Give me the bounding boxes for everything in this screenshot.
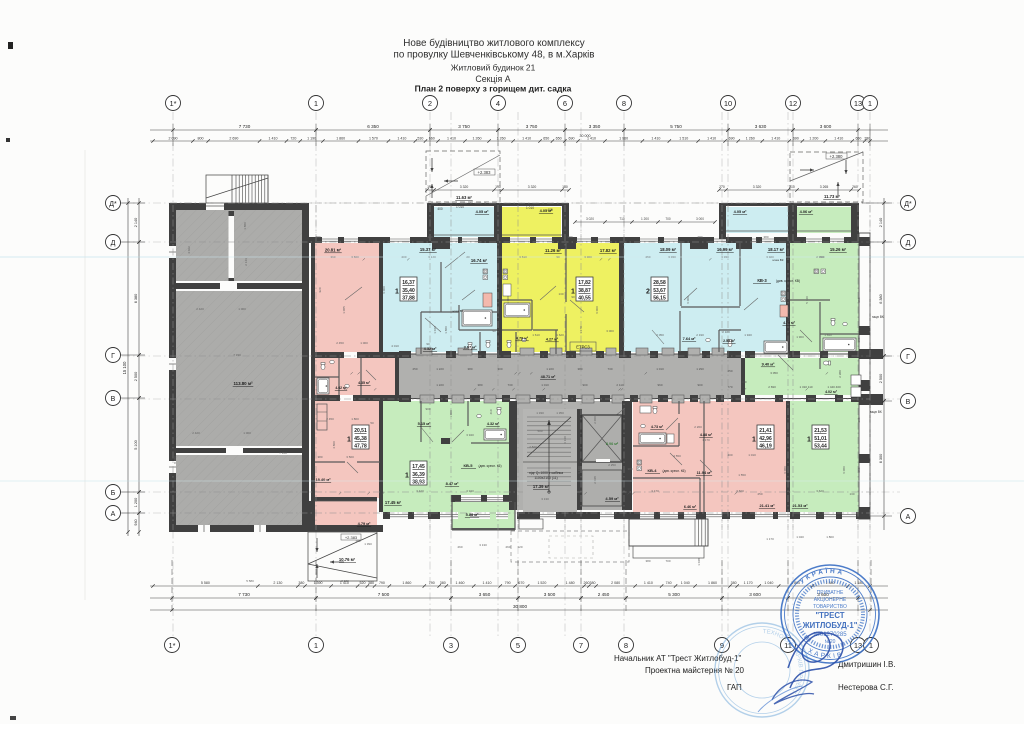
svg-text:2 090: 2 090: [168, 137, 177, 141]
svg-text:6 080: 6 080: [783, 466, 787, 474]
svg-text:3 265: 3 265: [820, 185, 829, 189]
svg-text:400: 400: [437, 207, 443, 211]
svg-text:4.79 м²: 4.79 м²: [358, 521, 372, 526]
svg-text:(див. кресл. К6): (див. кресл. К6): [662, 469, 685, 473]
svg-text:8.96 м²: 8.96 м²: [606, 442, 619, 446]
svg-text:6 000: 6 000: [686, 296, 690, 304]
svg-text:380: 380: [627, 467, 632, 471]
svg-text:790: 790: [379, 581, 385, 585]
svg-text:3 750: 3 750: [458, 124, 470, 129]
svg-text:380: 380: [697, 235, 702, 239]
svg-text:18.17 м²: 18.17 м²: [768, 247, 785, 252]
svg-text:6 000: 6 000: [506, 296, 510, 304]
svg-text:190: 190: [495, 185, 501, 189]
svg-text:Г: Г: [906, 354, 910, 361]
svg-text:1 290: 1 290: [696, 367, 704, 371]
svg-text:1 880: 1 880: [243, 222, 247, 230]
svg-text:1 000: 1 000: [360, 341, 368, 345]
svg-text:12: 12: [789, 99, 797, 108]
svg-text:А: А: [906, 514, 911, 521]
svg-text:4.32 м²: 4.32 м²: [424, 346, 438, 351]
svg-text:6 160: 6 160: [577, 466, 581, 474]
svg-text:1 330: 1 330: [536, 411, 544, 415]
svg-text:250: 250: [412, 367, 417, 371]
svg-text:5.15 м²: 5.15 м²: [418, 421, 432, 426]
svg-text:7 730: 7 730: [239, 124, 251, 129]
svg-text:1 010: 1 010: [656, 367, 664, 371]
svg-text:20.81 м²: 20.81 м²: [325, 248, 342, 253]
svg-text:42,96: 42,96: [759, 436, 772, 442]
svg-text:6 000: 6 000: [595, 306, 599, 314]
svg-text:700: 700: [665, 217, 671, 221]
svg-text:2 110: 2 110: [616, 383, 624, 387]
svg-text:1 410: 1 410: [834, 137, 843, 141]
svg-text:4 022: 4 022: [187, 246, 191, 254]
svg-text:4.59 м²: 4.59 м²: [605, 496, 619, 501]
svg-text:2 450: 2 450: [598, 592, 610, 597]
svg-text:380: 380: [315, 235, 320, 239]
svg-text:17,82: 17,82: [578, 280, 591, 286]
svg-text:1: 1: [347, 437, 351, 444]
svg-text:56,15: 56,15: [653, 296, 666, 302]
svg-text:1 440 400: 1 440 400: [827, 385, 841, 389]
svg-text:3 650: 3 650: [479, 592, 491, 597]
svg-text:Дмитришин І.В.: Дмитришин І.В.: [838, 660, 896, 669]
svg-text:2: 2: [646, 289, 650, 296]
svg-text:Б: Б: [111, 490, 116, 497]
svg-text:17.39 м²: 17.39 м²: [533, 484, 550, 489]
svg-text:1 048: 1 048: [697, 558, 701, 566]
svg-text:730: 730: [607, 367, 612, 371]
svg-text:17.45 м²: 17.45 м²: [385, 500, 402, 505]
svg-text:Начальник АТ "Трест Житлобуд-1: Начальник АТ "Трест Житлобуд-1": [614, 654, 741, 663]
svg-text:2 420: 2 420: [192, 431, 200, 435]
svg-text:1 460: 1 460: [456, 581, 465, 585]
svg-text:1 610: 1 610: [532, 333, 540, 337]
svg-text:660: 660: [429, 137, 435, 141]
svg-text:по провулку Шевченківському 48: по провулку Шевченківському 48, в м.Харк…: [394, 50, 595, 61]
svg-text:15.37 м²: 15.37 м²: [420, 247, 437, 252]
svg-text:1 800: 1 800: [826, 535, 834, 539]
svg-text:740: 740: [666, 581, 672, 585]
svg-text:5.88 м²: 5.88 м²: [466, 512, 480, 517]
svg-text:4.02 м²: 4.02 м²: [825, 390, 838, 394]
svg-text:21.41 м²: 21.41 м²: [760, 503, 776, 508]
svg-text:5 750: 5 750: [670, 124, 682, 129]
svg-text:3 750: 3 750: [526, 124, 538, 129]
svg-text:2 450: 2 450: [326, 417, 334, 421]
svg-text:1 510: 1 510: [679, 137, 688, 141]
svg-text:3 940: 3 940: [466, 433, 474, 437]
svg-text:5 580: 5 580: [201, 581, 210, 585]
svg-text:2 140: 2 140: [879, 218, 883, 228]
svg-text:1 190: 1 190: [307, 137, 316, 141]
svg-text:6 000: 6 000: [382, 286, 386, 294]
svg-text:3 350: 3 350: [589, 124, 601, 129]
svg-text:ніша ВК: ніша ВК: [773, 258, 784, 262]
svg-text:КВ-3: КВ-3: [757, 278, 767, 283]
svg-text:ніша ВК: ніша ВК: [453, 309, 464, 313]
svg-text:11.63 м²: 11.63 м²: [456, 195, 473, 200]
svg-text:280: 280: [864, 137, 870, 141]
svg-text:Житловий будинок 21: Житловий будинок 21: [451, 63, 536, 73]
svg-text:2 380: 2 380: [838, 370, 842, 378]
svg-text:1: 1: [395, 289, 399, 296]
svg-text:Нестерова С.Г.: Нестерова С.Г.: [838, 683, 894, 692]
svg-text:960: 960: [657, 383, 662, 387]
svg-text:1 260: 1 260: [497, 137, 506, 141]
svg-text:2 060: 2 060: [593, 416, 597, 424]
svg-text:2 820: 2 820: [529, 445, 537, 449]
svg-text:250: 250: [757, 492, 762, 496]
svg-text:Д: Д: [906, 240, 911, 247]
svg-text:35,40: 35,40: [402, 288, 415, 294]
svg-text:900: 900: [425, 407, 430, 411]
svg-text:90: 90: [426, 342, 430, 346]
svg-text:КВ-5: КВ-5: [464, 463, 474, 468]
svg-text:1 410: 1 410: [522, 137, 531, 141]
svg-text:1 940: 1 940: [744, 333, 752, 337]
svg-text:1 410: 1 410: [644, 581, 653, 585]
svg-text:700: 700: [665, 559, 670, 563]
svg-text:210: 210: [789, 185, 795, 189]
svg-text:650: 650: [543, 137, 549, 141]
svg-text:380: 380: [317, 455, 322, 459]
svg-text:6 160: 6 160: [563, 436, 567, 444]
svg-text:Д*: Д*: [904, 201, 912, 208]
svg-text:250: 250: [727, 369, 732, 373]
svg-text:1 390: 1 390: [364, 542, 372, 546]
svg-text:1 860: 1 860: [708, 581, 717, 585]
svg-text:мщв ВК: мщв ВК: [870, 410, 882, 414]
svg-text:3 420: 3 420: [416, 489, 424, 493]
svg-text:1*: 1*: [169, 99, 176, 108]
svg-text:2 690: 2 690: [229, 137, 238, 141]
svg-text:3.97 м²: 3.97 м²: [464, 345, 478, 350]
svg-text:90: 90: [492, 329, 496, 333]
svg-text:16.74 м²: 16.74 м²: [471, 258, 488, 263]
svg-text:30 800: 30 800: [513, 604, 527, 609]
svg-text:21,41: 21,41: [759, 428, 772, 434]
svg-text:7 730: 7 730: [238, 592, 250, 597]
svg-text:690: 690: [793, 137, 799, 141]
svg-text:790: 790: [505, 581, 511, 585]
svg-text:6: 6: [563, 99, 567, 108]
svg-text:6 350: 6 350: [367, 124, 379, 129]
svg-text:3 600: 3 600: [736, 489, 744, 493]
svg-text:410: 410: [489, 409, 493, 414]
svg-text:1*: 1*: [168, 641, 175, 650]
svg-text:1 570: 1 570: [369, 137, 378, 141]
svg-text:1 010: 1 010: [748, 453, 756, 457]
svg-text:1 410: 1 410: [771, 137, 780, 141]
svg-text:1 010: 1 010: [526, 206, 534, 210]
svg-text:300: 300: [497, 367, 502, 371]
svg-text:3 050: 3 050: [770, 371, 778, 375]
svg-text:5 100: 5 100: [134, 440, 138, 450]
svg-text:3 600: 3 600: [749, 592, 761, 597]
svg-text:1 640: 1 640: [824, 333, 832, 337]
svg-text:520: 520: [360, 581, 366, 585]
svg-text:46,19: 46,19: [759, 444, 772, 450]
svg-text:16,37: 16,37: [402, 280, 415, 286]
svg-text:13: 13: [854, 99, 862, 108]
svg-text:17,45: 17,45: [412, 464, 425, 470]
svg-text:Секція А: Секція А: [475, 74, 510, 84]
svg-text:(див. кресл. КВ): (див. кресл. КВ): [776, 279, 800, 283]
svg-text:1: 1: [314, 641, 318, 650]
svg-text:2 048: 2 048: [593, 476, 597, 484]
svg-text:підг Q=1000 z кабінка: підг Q=1000 z кабінка: [529, 471, 563, 475]
svg-text:1 200: 1 200: [134, 498, 138, 508]
svg-text:2.59 м²: 2.59 м²: [723, 339, 736, 343]
svg-text:4.05 м²: 4.05 м²: [476, 209, 490, 214]
svg-text:Г: Г: [111, 353, 115, 360]
svg-text:45,38: 45,38: [354, 436, 367, 442]
svg-text:1 390: 1 390: [314, 581, 323, 585]
svg-text:7: 7: [579, 641, 583, 650]
svg-text:38,93: 38,93: [412, 480, 425, 486]
svg-text:1 220: 1 220: [436, 383, 444, 387]
svg-text:1 000: 1 000: [243, 431, 251, 435]
svg-text:18.09 м²: 18.09 м²: [660, 247, 677, 252]
svg-text:260: 260: [505, 545, 510, 549]
svg-text:3 630: 3 630: [755, 124, 767, 129]
svg-text:650: 650: [855, 137, 861, 141]
svg-text:380: 380: [857, 337, 861, 342]
svg-text:690: 690: [729, 137, 735, 141]
svg-text:270: 270: [719, 185, 725, 189]
svg-text:(див. кресл. К6): (див. кресл. К6): [478, 464, 501, 468]
svg-text:2 143: 2 143: [244, 258, 248, 266]
svg-text:1 410: 1 410: [397, 137, 406, 141]
svg-text:260: 260: [457, 545, 462, 549]
svg-text:ТОВАРИСТВО: ТОВАРИСТВО: [813, 604, 847, 610]
svg-text:1 480: 1 480: [566, 581, 575, 585]
svg-text:7.64 м²: 7.64 м²: [683, 336, 697, 341]
svg-text:21.53 м²: 21.53 м²: [793, 503, 809, 508]
svg-text:АКЦІОНЕРНЕ: АКЦІОНЕРНЕ: [814, 597, 847, 603]
svg-text:650: 650: [556, 137, 562, 141]
svg-text:1 520: 1 520: [537, 581, 546, 585]
svg-text:113.80 м²: 113.80 м²: [233, 381, 253, 386]
svg-text:1 620: 1 620: [556, 333, 564, 337]
svg-text:2: 2: [428, 99, 432, 108]
svg-text:2 260: 2 260: [694, 425, 702, 429]
svg-text:2 500: 2 500: [879, 374, 883, 384]
svg-text:4 800: 4 800: [332, 441, 336, 449]
svg-text:1: 1: [807, 437, 811, 444]
svg-text:16.99 м²: 16.99 м²: [717, 247, 734, 252]
svg-text:4 550: 4 550: [673, 454, 681, 458]
svg-text:920: 920: [318, 287, 322, 292]
svg-text:7 500: 7 500: [378, 592, 390, 597]
svg-text:2 190: 2 190: [696, 333, 704, 337]
svg-text:1 170: 1 170: [702, 438, 710, 442]
svg-text:4.79 м²: 4.79 м²: [783, 321, 796, 325]
svg-text:380: 380: [427, 235, 432, 239]
svg-text:3 020: 3 020: [586, 217, 594, 221]
svg-text:1 170: 1 170: [744, 581, 753, 585]
svg-text:13: 13: [854, 641, 862, 650]
svg-text:1 310 110: 1 310 110: [799, 385, 812, 389]
svg-text:47,78: 47,78: [354, 444, 367, 450]
svg-text:3 620: 3 620: [816, 489, 824, 493]
svg-text:130: 130: [849, 492, 854, 496]
svg-text:3 130: 3 130: [541, 497, 549, 501]
svg-text:1 170: 1 170: [766, 537, 774, 541]
svg-text:48.71 м²: 48.71 м²: [541, 375, 556, 379]
svg-text:6 300: 6 300: [879, 454, 883, 464]
svg-text:530: 530: [417, 137, 423, 141]
svg-text:10.76 м²: 10.76 м²: [339, 557, 356, 562]
svg-text:8.47 м²: 8.47 м²: [446, 481, 460, 486]
svg-text:Д: Д: [111, 240, 116, 247]
svg-text:30 000: 30 000: [580, 134, 591, 138]
svg-text:1 040: 1 040: [681, 581, 690, 585]
svg-text:4.06 м²: 4.06 м²: [800, 209, 814, 214]
svg-text:900: 900: [697, 383, 702, 387]
svg-text:Д*: Д*: [109, 201, 117, 208]
svg-text:+2.383: +2.383: [478, 170, 492, 175]
svg-text:3 940: 3 940: [466, 489, 474, 493]
svg-text:2 420: 2 420: [196, 307, 204, 311]
svg-text:1 960: 1 960: [796, 335, 804, 339]
svg-text:190: 190: [427, 185, 433, 189]
svg-text:21,53: 21,53: [814, 428, 827, 434]
svg-text:20,51: 20,51: [354, 428, 367, 434]
svg-text:1 040: 1 040: [764, 581, 773, 585]
svg-text:1 800: 1 800: [351, 417, 359, 421]
svg-text:28,58: 28,58: [653, 280, 666, 286]
svg-text:3 130: 3 130: [479, 543, 487, 547]
svg-text:2 250: 2 250: [608, 463, 616, 467]
svg-text:1 000: 1 000: [238, 307, 246, 311]
svg-text:6 380: 6 380: [134, 294, 138, 304]
svg-text:940: 940: [134, 519, 138, 525]
svg-text:15 100: 15 100: [122, 361, 127, 374]
svg-text:1 010: 1 010: [541, 383, 549, 387]
svg-text:36,39: 36,39: [412, 472, 425, 478]
svg-text:2 130: 2 130: [341, 579, 349, 583]
svg-text:800: 800: [198, 137, 204, 141]
svg-text:690: 690: [568, 137, 574, 141]
svg-text:1 220: 1 220: [546, 367, 554, 371]
svg-text:4.62 м²: 4.62 м²: [335, 386, 347, 390]
svg-text:7 330: 7 330: [233, 353, 241, 357]
svg-text:730: 730: [507, 383, 512, 387]
svg-text:15.26 м²: 15.26 м²: [830, 247, 847, 252]
svg-text:2 100: 2 100: [722, 330, 730, 334]
svg-text:1 010: 1 010: [456, 205, 464, 209]
svg-text:500: 500: [537, 429, 542, 433]
svg-text:380: 380: [857, 417, 861, 422]
svg-text:40,55: 40,55: [578, 296, 591, 302]
svg-text:380: 380: [645, 559, 650, 563]
svg-text:4.05 м²: 4.05 м²: [734, 209, 748, 214]
svg-text:1 170: 1 170: [579, 326, 583, 334]
svg-text:53,67: 53,67: [653, 288, 666, 294]
svg-text:5 300: 5 300: [668, 592, 680, 597]
svg-text:1 260: 1 260: [473, 137, 482, 141]
svg-text:250: 250: [857, 297, 861, 302]
svg-text:1 049: 1 049: [433, 326, 437, 334]
svg-text:380: 380: [567, 235, 572, 239]
svg-text:4.73 м²: 4.73 м²: [651, 425, 664, 429]
svg-text:900: 900: [582, 383, 587, 387]
svg-text:Проектна майстерня № 20: Проектна майстерня № 20: [645, 666, 745, 675]
svg-text:4.78 м²: 4.78 м²: [516, 337, 529, 341]
svg-text:1 410: 1 410: [651, 137, 660, 141]
svg-text:260: 260: [852, 185, 858, 189]
svg-text:1 410: 1 410: [707, 137, 716, 141]
svg-text:3 320: 3 320: [753, 185, 762, 189]
svg-text:2 130: 2 130: [273, 581, 282, 585]
svg-text:6 380: 6 380: [879, 294, 883, 304]
svg-text:3 000: 3 000: [696, 217, 704, 221]
svg-text:1 040: 1 040: [796, 535, 804, 539]
svg-text:1 410: 1 410: [482, 581, 491, 585]
svg-text:ЕТРС3: ЕТРС3: [576, 345, 590, 350]
svg-text:5 580: 5 580: [246, 579, 254, 583]
svg-text:+2.380: +2.380: [830, 154, 844, 159]
svg-text:1 200: 1 200: [809, 137, 818, 141]
svg-text:1 410: 1 410: [269, 137, 278, 141]
svg-text:3 320: 3 320: [460, 185, 469, 189]
svg-text:1 220: 1 220: [436, 367, 444, 371]
svg-text:11.94 м²: 11.94 м²: [697, 470, 712, 475]
svg-text:1: 1: [752, 437, 756, 444]
svg-text:В: В: [906, 399, 911, 406]
svg-text:А: А: [111, 511, 116, 518]
svg-text:1 960: 1 960: [619, 137, 628, 141]
svg-text:2 140: 2 140: [134, 218, 138, 228]
svg-text:17.82 м²: 17.82 м²: [600, 248, 617, 253]
svg-text:2 690: 2 690: [768, 385, 776, 389]
svg-text:11.73 м²: 11.73 м²: [824, 194, 841, 199]
svg-text:"ТРЕСТ: "ТРЕСТ: [815, 611, 844, 620]
svg-text:7 350: 7 350: [279, 451, 287, 455]
svg-text:8: 8: [622, 99, 626, 108]
svg-text:380: 380: [763, 235, 768, 239]
svg-text:710: 710: [619, 217, 625, 221]
svg-text:1: 1: [405, 473, 409, 480]
svg-text:3 500: 3 500: [346, 455, 354, 459]
svg-text:50: 50: [370, 421, 374, 425]
svg-text:4.27 м²: 4.27 м²: [546, 338, 559, 342]
svg-text:1 000: 1 000: [449, 410, 453, 418]
svg-text:720: 720: [290, 137, 296, 141]
svg-text:4.88 м²: 4.88 м²: [700, 433, 713, 437]
svg-text:План 2 поверху з горищем дит.: План 2 поверху з горищем дит. садка: [415, 84, 572, 94]
svg-text:6 000: 6 000: [620, 296, 624, 304]
svg-text:4: 4: [496, 99, 500, 108]
svg-text:11.26 м²: 11.26 м²: [545, 248, 562, 253]
svg-text:1 085: 1 085: [342, 306, 346, 314]
svg-text:ЖИТЛОБУД-1": ЖИТЛОБУД-1": [802, 621, 858, 630]
svg-text:1 860: 1 860: [402, 581, 411, 585]
svg-text:2 500: 2 500: [134, 372, 138, 382]
svg-text:2 080: 2 080: [611, 581, 620, 585]
svg-text:6 080: 6 080: [842, 466, 846, 474]
svg-text:1 200: 1 200: [641, 217, 649, 221]
svg-text:КВ-4: КВ-4: [648, 468, 658, 473]
svg-text:5: 5: [516, 641, 520, 650]
svg-text:380: 380: [577, 367, 582, 371]
svg-text:1 260: 1 260: [746, 137, 755, 141]
svg-text:1100х2100 (11): 1100х2100 (11): [534, 476, 557, 480]
svg-text:400: 400: [727, 453, 732, 457]
